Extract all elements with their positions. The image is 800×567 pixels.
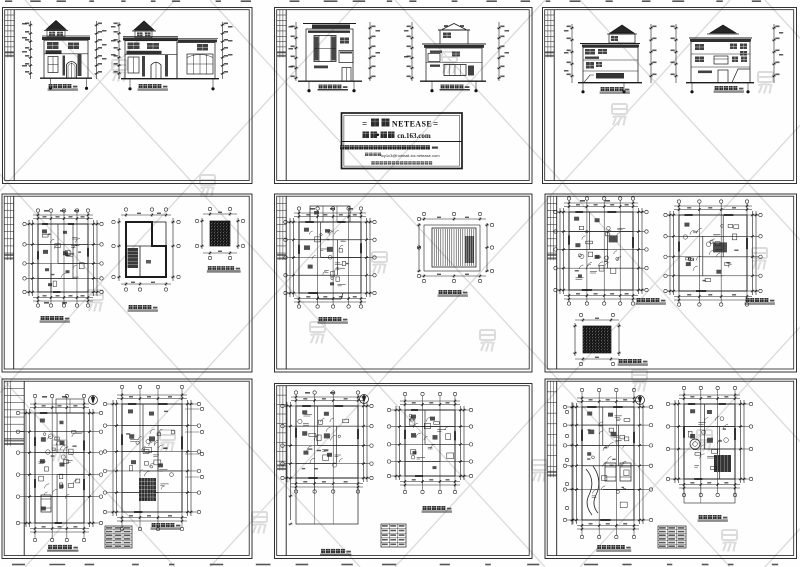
svg-text:=: = (362, 119, 367, 129)
svg-text:lcy1c3@hotmail-lcs.netease.com: lcy1c3@hotmail-lcs.netease.com (381, 153, 440, 158)
svg-text:NETEASE: NETEASE (392, 120, 432, 129)
svg-text:=: = (433, 119, 438, 129)
svg-text:cn.163.com: cn.163.com (397, 132, 431, 140)
